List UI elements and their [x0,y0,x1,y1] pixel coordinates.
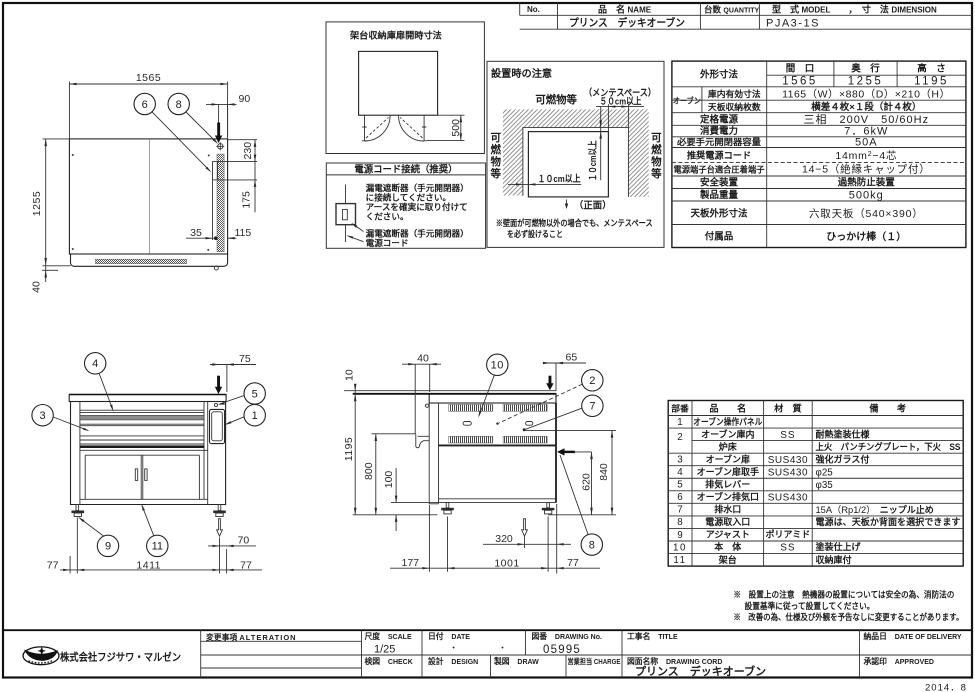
svg-text:※ 設置上の注意 熱機器の設置については安全の為、消防法の: ※ 設置上の注意 熱機器の設置については安全の為、消防法の [733,588,954,599]
svg-text:φ35: φ35 [816,480,834,491]
svg-text:40: 40 [31,281,43,293]
svg-text:1411: 1411 [136,559,161,571]
svg-text:５０cm以上: ５０cm以上 [600,96,643,107]
svg-text:六取天板（540×390）: 六取天板（540×390） [809,207,924,220]
svg-text:230: 230 [242,142,254,160]
svg-text:1/25: 1/25 [374,644,395,656]
svg-text:可: 可 [651,132,662,144]
svg-text:4: 4 [677,467,683,478]
svg-text:SUS430: SUS430 [768,493,808,504]
svg-text:6: 6 [677,492,683,503]
svg-text:に接続してください。: に接続してください。 [366,192,451,203]
svg-text:35: 35 [190,227,202,239]
svg-text:耐熱塗装仕様: 耐熱塗装仕様 [816,428,871,439]
svg-text:間 口: 間 口 [786,63,815,75]
svg-text:100: 100 [383,471,395,489]
svg-text:安全装置: 安全装置 [700,176,739,188]
svg-text:塗装仕上げ: 塗装仕上げ [816,541,862,552]
svg-text:1565: 1565 [136,72,161,84]
svg-text:10: 10 [343,369,355,381]
svg-text:架台収納庫扉開時寸法: 架台収納庫扉開時寸法 [349,30,442,41]
svg-text:等: 等 [490,167,502,180]
svg-text:50A: 50A [855,137,878,149]
svg-text:燃: 燃 [651,143,662,156]
svg-text:可燃物等: 可燃物等 [535,93,577,106]
svg-text:株式会社フジサワ・マルゼン: 株式会社フジサワ・マルゼン [60,651,181,664]
svg-text:可: 可 [491,132,502,144]
svg-text:1001: 1001 [494,558,519,570]
svg-text:推奨電源コード: 推奨電源コード [687,150,751,161]
svg-text:175: 175 [241,191,253,209]
svg-text:奥 行: 奥 行 [850,63,880,75]
svg-text:2: 2 [589,375,595,387]
svg-text:高 さ: 高 さ [917,63,946,75]
svg-text:天板収納枚数: 天板収納枚数 [708,101,761,112]
svg-text:消費電力: 消費電力 [700,125,738,137]
svg-text:電源は、天板か背面を選択できます: 電源は、天板か背面を選択できます [816,516,961,527]
svg-text:10: 10 [491,360,504,372]
svg-text:品 名 NAME: 品 名 NAME [598,4,652,15]
svg-text:備 考: 備 考 [869,403,906,414]
svg-text:4: 4 [92,358,98,370]
svg-text:物: 物 [651,155,662,168]
svg-text:2014．8: 2014．8 [925,683,967,692]
svg-text:77: 77 [47,559,59,571]
svg-text:オーブン扉取手: オーブン扉取手 [697,466,759,477]
svg-text:8: 8 [677,517,683,528]
svg-text:8: 8 [589,539,595,551]
svg-text:05995: 05995 [543,644,581,656]
svg-text:φ25: φ25 [816,467,834,478]
svg-text:1255: 1255 [848,76,884,88]
svg-text:※壁面が可燃物以外の場合でも、メンテスペース: ※壁面が可燃物以外の場合でも、メンテスペース [496,217,653,228]
svg-text:オーブン排気口: オーブン排気口 [697,491,759,502]
svg-text:等: 等 [650,167,662,180]
svg-text:電源コード: 電源コード [366,237,409,248]
svg-text:電源コード接続（推奨）: 電源コード接続（推奨） [354,163,457,174]
svg-text:11: 11 [152,541,163,553]
svg-text:アースを確実に取り付けて: アースを確実に取り付けて [366,201,468,212]
svg-text:1: 1 [252,410,258,422]
svg-text:5: 5 [252,388,258,400]
svg-text:1: 1 [677,417,682,428]
svg-text:炉床: 炉床 [719,441,738,452]
svg-text:排水口: 排水口 [714,504,741,515]
svg-text:三相 200V 50/60Hz: 三相 200V 50/60Hz [803,113,929,126]
svg-text:1195: 1195 [914,76,949,88]
svg-text:プリンス デッキオーブン: プリンス デッキオーブン [569,16,685,29]
svg-text:強化ガラス付: 強化ガラス付 [816,453,870,464]
svg-text:14mm2−4芯: 14mm2−4芯 [835,149,897,162]
svg-text:77: 77 [567,557,579,569]
svg-text:SUS430: SUS430 [768,467,808,478]
svg-text:3: 3 [677,455,683,466]
svg-text:過熱防止装置: 過熱防止装置 [837,176,896,188]
svg-text:ひっかけ棒（１）: ひっかけ棒（１） [826,230,906,243]
svg-text:SUS430: SUS430 [768,455,808,466]
svg-text:物: 物 [491,155,502,168]
svg-text:SS: SS [780,430,795,441]
svg-text:ポリアミド: ポリアミド [765,529,810,540]
svg-text:SS: SS [780,543,795,554]
svg-text:7: 7 [677,505,682,516]
svg-text:6: 6 [142,99,148,111]
svg-text:１０cm以上: １０cm以上 [587,140,598,181]
svg-text:天板外形寸法: 天板外形寸法 [690,207,748,219]
svg-text:1565: 1565 [782,76,818,88]
svg-text:500kg: 500kg [849,189,884,201]
svg-text:75: 75 [239,353,251,365]
svg-text:1195: 1195 [343,437,355,462]
svg-text:620: 620 [580,473,592,491]
svg-text:No.: No. [527,5,540,14]
svg-text:付属品: 付属品 [705,231,734,243]
svg-text:営業担当 CHARGE: 営業担当 CHARGE [568,657,621,666]
svg-text:変更事項 ALTERATION: 変更事項 ALTERATION [206,632,297,642]
svg-text:必要手元開閉器容量: 必要手元開閉器容量 [676,136,761,147]
svg-text:・: ・ [498,643,507,653]
svg-text:設置基準に従って設置してください。: 設置基準に従って設置してください。 [745,600,875,611]
svg-text:・: ・ [449,643,458,653]
svg-text:設置時の注意: 設置時の注意 [491,67,552,80]
svg-text:5: 5 [677,480,683,491]
svg-text:外形寸法: 外形寸法 [699,69,739,81]
svg-text:漏電遮断器（手元開閉器）: 漏電遮断器（手元開閉器） [366,182,469,193]
svg-text:漏電遮断器（手元開閉器）: 漏電遮断器（手元開閉器） [366,228,469,239]
svg-text:定格電源: 定格電源 [699,113,739,125]
svg-text:電源取入口: 電源取入口 [705,516,750,527]
svg-text:90: 90 [239,93,251,105]
svg-text:PJA3-1S: PJA3-1S [766,18,820,30]
svg-text:１０cm以上: １０cm以上 [538,173,582,184]
svg-text:オーブン操作パネル: オーブン操作パネル [693,416,762,427]
svg-text:77: 77 [240,559,252,571]
svg-text:9: 9 [677,530,682,541]
svg-text:本 体: 本 体 [714,541,742,552]
svg-text:型 式 MODEL ， 寸 法 DIMENSION: 型 式 MODEL ， 寸 法 DIMENSION [772,4,937,15]
svg-text:70: 70 [238,534,250,546]
svg-text:1165（W）×880（D）×210（H）: 1165（W）×880（D）×210（H） [782,89,950,101]
svg-text:部番: 部番 [671,403,689,414]
svg-text:※ 改善の為、仕様及び外観を予告なしに変更することがあります: ※ 改善の為、仕様及び外観を予告なしに変更することがあります。 [733,611,963,622]
svg-text:燃: 燃 [491,143,502,156]
svg-text:アジャスト: アジャスト [706,530,750,540]
svg-text:9: 9 [105,541,111,553]
svg-text:177: 177 [402,557,420,569]
svg-text:800: 800 [363,462,375,480]
svg-text:排気レバー: 排気レバー [705,479,750,490]
svg-text:プリンス デッキオーブン: プリンス デッキオーブン [635,664,766,678]
svg-text:2: 2 [677,432,682,443]
svg-text:11: 11 [673,555,686,566]
svg-text:10: 10 [673,542,687,553]
svg-text:架台: 架台 [718,554,737,565]
svg-text:横差４枚×１段（計４枚）: 横差４枚×１段（計４枚） [811,101,921,113]
svg-text:上火 パンチングプレート，下火 SS: 上火 パンチングプレート，下火 SS [816,441,961,452]
svg-text:ください。: ください。 [366,212,409,222]
svg-text:14−5（絶縁キャップ付）: 14−5（絶縁キャップ付） [802,163,931,176]
svg-text:材 質: 材 質 [774,403,802,414]
svg-text:オーブン扉: オーブン扉 [706,453,750,464]
svg-text:オーブン: オーブン [673,96,701,106]
svg-text:収納庫付: 収納庫付 [816,554,852,565]
svg-text:8: 8 [176,99,182,111]
svg-text:製品重量: 製品重量 [699,189,739,201]
svg-text:庫内有効寸法: 庫内有効寸法 [708,88,761,99]
svg-text:品 名: 品 名 [709,403,746,414]
svg-text:（正面）: （正面） [574,200,612,211]
svg-text:40: 40 [417,352,429,364]
svg-text:を必ず設けること: を必ず設けること [507,228,563,239]
svg-text:1255: 1255 [31,191,43,216]
svg-text:15A（Rp1/2） ニップル止め: 15A（Rp1/2） ニップル止め [816,504,934,515]
svg-text:3: 3 [40,410,46,422]
svg-text:65: 65 [566,352,578,364]
svg-text:500: 500 [450,119,462,137]
svg-text:7: 7 [589,401,595,413]
svg-text:840: 840 [598,463,610,481]
svg-text:電源端子台適合圧着端子: 電源端子台適合圧着端子 [674,163,765,174]
svg-text:320: 320 [495,533,513,545]
svg-text:オーブン庫内: オーブン庫内 [701,428,754,439]
svg-text:115: 115 [235,227,252,239]
